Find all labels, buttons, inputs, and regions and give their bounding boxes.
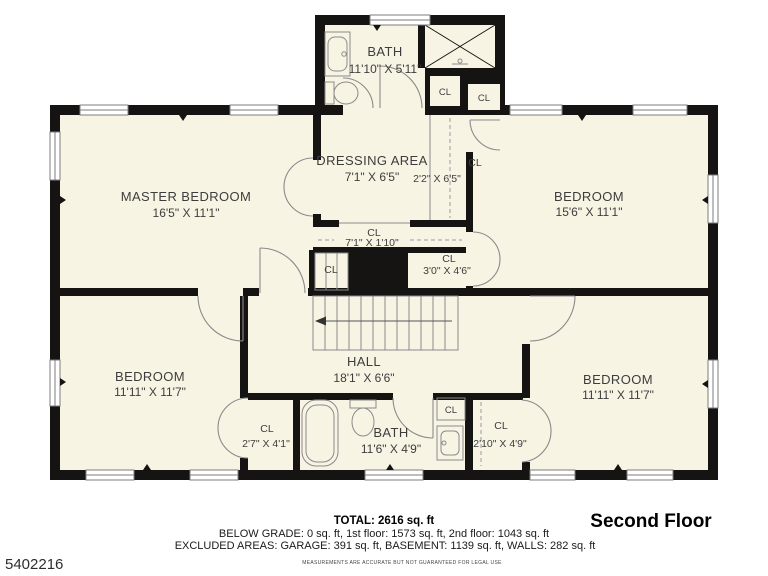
cl-se-label: CL xyxy=(494,420,508,432)
bath-bottom-label: BATH xyxy=(373,425,408,440)
bedroom-se-dims: 11'11" X 11'7" xyxy=(582,388,654,402)
cl-dressing-label: CL xyxy=(468,157,482,169)
master-bedroom-dims: 16'5" X 11'1" xyxy=(153,206,220,220)
cl-landing-dims: 7'1" X 1'10" xyxy=(345,237,399,249)
cl-linen-label: CL xyxy=(445,405,457,416)
cl-bath-b-label: CL xyxy=(478,93,490,104)
cl-stair-label: CL xyxy=(324,264,338,276)
master-bedroom-label: MASTER BEDROOM xyxy=(121,189,252,204)
bedroom-ne-label: BEDROOM xyxy=(554,189,624,204)
disclaimer-text: MEASUREMENTS ARE ACCURATE BUT NOT GUARAN… xyxy=(302,560,502,566)
cl-ne-dims: 3'0" X 4'6" xyxy=(423,265,471,277)
below-grade-text: BELOW GRADE: 0 sq. ft, 1st floor: 1573 s… xyxy=(219,528,549,540)
floor-plan-page: BATH 11'10" X 5'11" MASTER BEDROOM 16'5"… xyxy=(0,0,768,576)
total-area-text: TOTAL: 2616 sq. ft xyxy=(334,515,435,527)
dressing-area-dims: 7'1" X 6'5" xyxy=(345,170,399,184)
hall-dims: 18'1" X 6'6" xyxy=(333,371,394,385)
bath-bottom-dims: 11'6" X 4'9" xyxy=(361,442,421,456)
photo-id: 5402216 xyxy=(5,556,63,573)
bedroom-sw-dims: 11'11" X 11'7" xyxy=(114,385,186,399)
cl-ne-label: CL xyxy=(442,253,456,265)
cl-dressing-dims: 2'2" X 6'5" xyxy=(413,173,461,185)
area-summary: TOTAL: 2616 sq. ft BELOW GRADE: 0 sq. ft… xyxy=(175,515,596,566)
dressing-area-label: DRESSING AREA xyxy=(316,153,427,168)
bedroom-ne-dims: 15'6" X 11'1" xyxy=(556,205,623,219)
bath-top-label: BATH xyxy=(367,44,402,59)
cl-sw-dims: 2'7" X 4'1" xyxy=(242,438,290,450)
bedroom-se-label: BEDROOM xyxy=(583,372,653,387)
floor-title: Second Floor xyxy=(590,511,712,532)
cl-bath-a-label: CL xyxy=(439,87,451,98)
hall-label: HALL xyxy=(347,354,381,369)
bath-top-dims: 11'10" X 5'11" xyxy=(349,62,422,76)
chimney-box xyxy=(348,250,408,292)
cl-sw-label: CL xyxy=(260,423,274,435)
floor-plan-drawing: BATH 11'10" X 5'11" MASTER BEDROOM 16'5"… xyxy=(0,0,768,576)
excluded-areas-text: EXCLUDED AREAS: GARAGE: 391 sq. ft, BASE… xyxy=(175,540,596,552)
cl-se-dims: 2'10" X 4'9" xyxy=(473,438,527,450)
bedroom-sw-label: BEDROOM xyxy=(115,369,185,384)
